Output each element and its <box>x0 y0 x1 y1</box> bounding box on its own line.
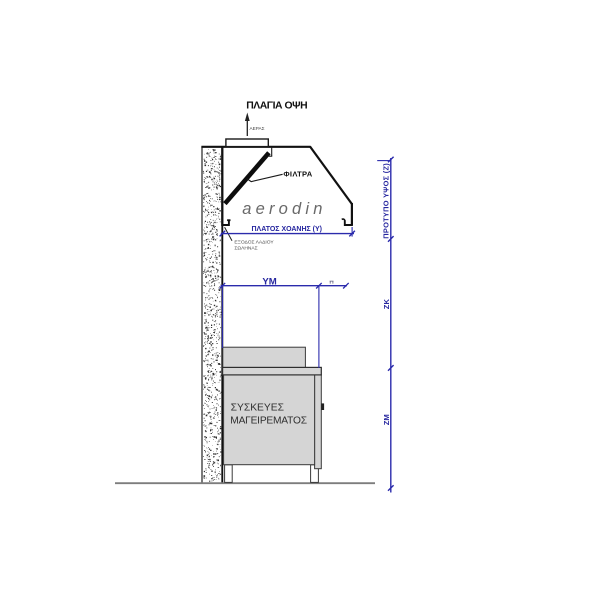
svg-text:ΖΜ: ΖΜ <box>382 414 391 425</box>
svg-text:ΖΚ: ΖΚ <box>382 299 391 310</box>
svg-text:ΠΛΑΓΙΑ ΟΨΗ: ΠΛΑΓΙΑ ΟΨΗ <box>246 101 307 112</box>
svg-text:ΣΩΛΗΝΑΣ: ΣΩΛΗΝΑΣ <box>234 245 257 251</box>
svg-text:ΥΜ: ΥΜ <box>262 277 276 288</box>
svg-text:ΣΥΣΚΕΥΕΣ: ΣΥΣΚΕΥΕΣ <box>231 403 284 414</box>
svg-text:aerodin: aerodin <box>242 200 326 218</box>
svg-text:ΜΑΓΕΙΡΕΜΑΤΟΣ: ΜΑΓΕΙΡΕΜΑΤΟΣ <box>230 416 306 427</box>
svg-text:ΑΕΡΑΣ: ΑΕΡΑΣ <box>250 126 265 131</box>
svg-text:ΠΡΟΤΥΠΟ ΥΨΟΣ (Ζ): ΠΡΟΤΥΠΟ ΥΨΟΣ (Ζ) <box>382 163 391 239</box>
svg-text:ΦΙΛΤΡΑ: ΦΙΛΤΡΑ <box>283 169 312 178</box>
svg-text:ΠΛΑΤΟΣ ΧΟΑΝΗΣ (Υ): ΠΛΑΤΟΣ ΧΟΑΝΗΣ (Υ) <box>252 226 323 233</box>
svg-text:ΕΞΟΔΟΣ ΛΑΔΙΟΥ: ΕΞΟΔΟΣ ΛΑΔΙΟΥ <box>234 239 274 245</box>
